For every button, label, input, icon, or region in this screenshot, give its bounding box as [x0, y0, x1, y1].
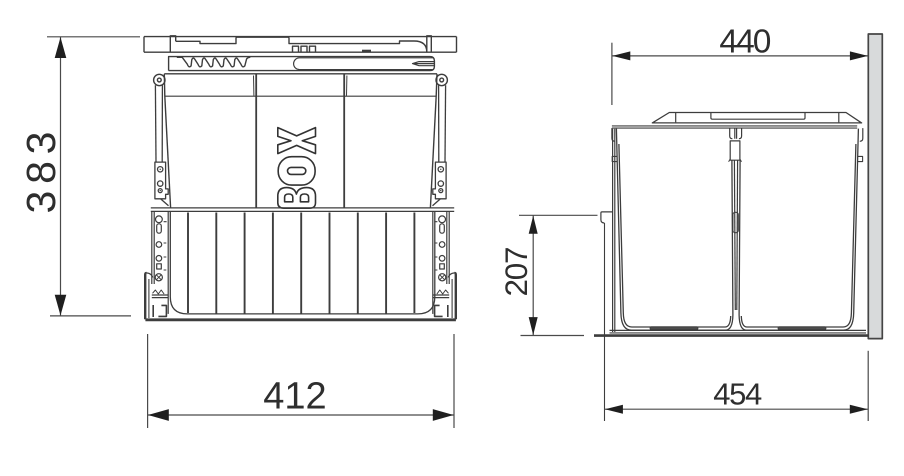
svg-text:207: 207	[498, 247, 534, 297]
svg-text:412: 412	[263, 375, 326, 417]
svg-text:383: 383	[18, 132, 64, 214]
svg-text:440: 440	[719, 24, 771, 61]
svg-text:454: 454	[713, 377, 762, 412]
